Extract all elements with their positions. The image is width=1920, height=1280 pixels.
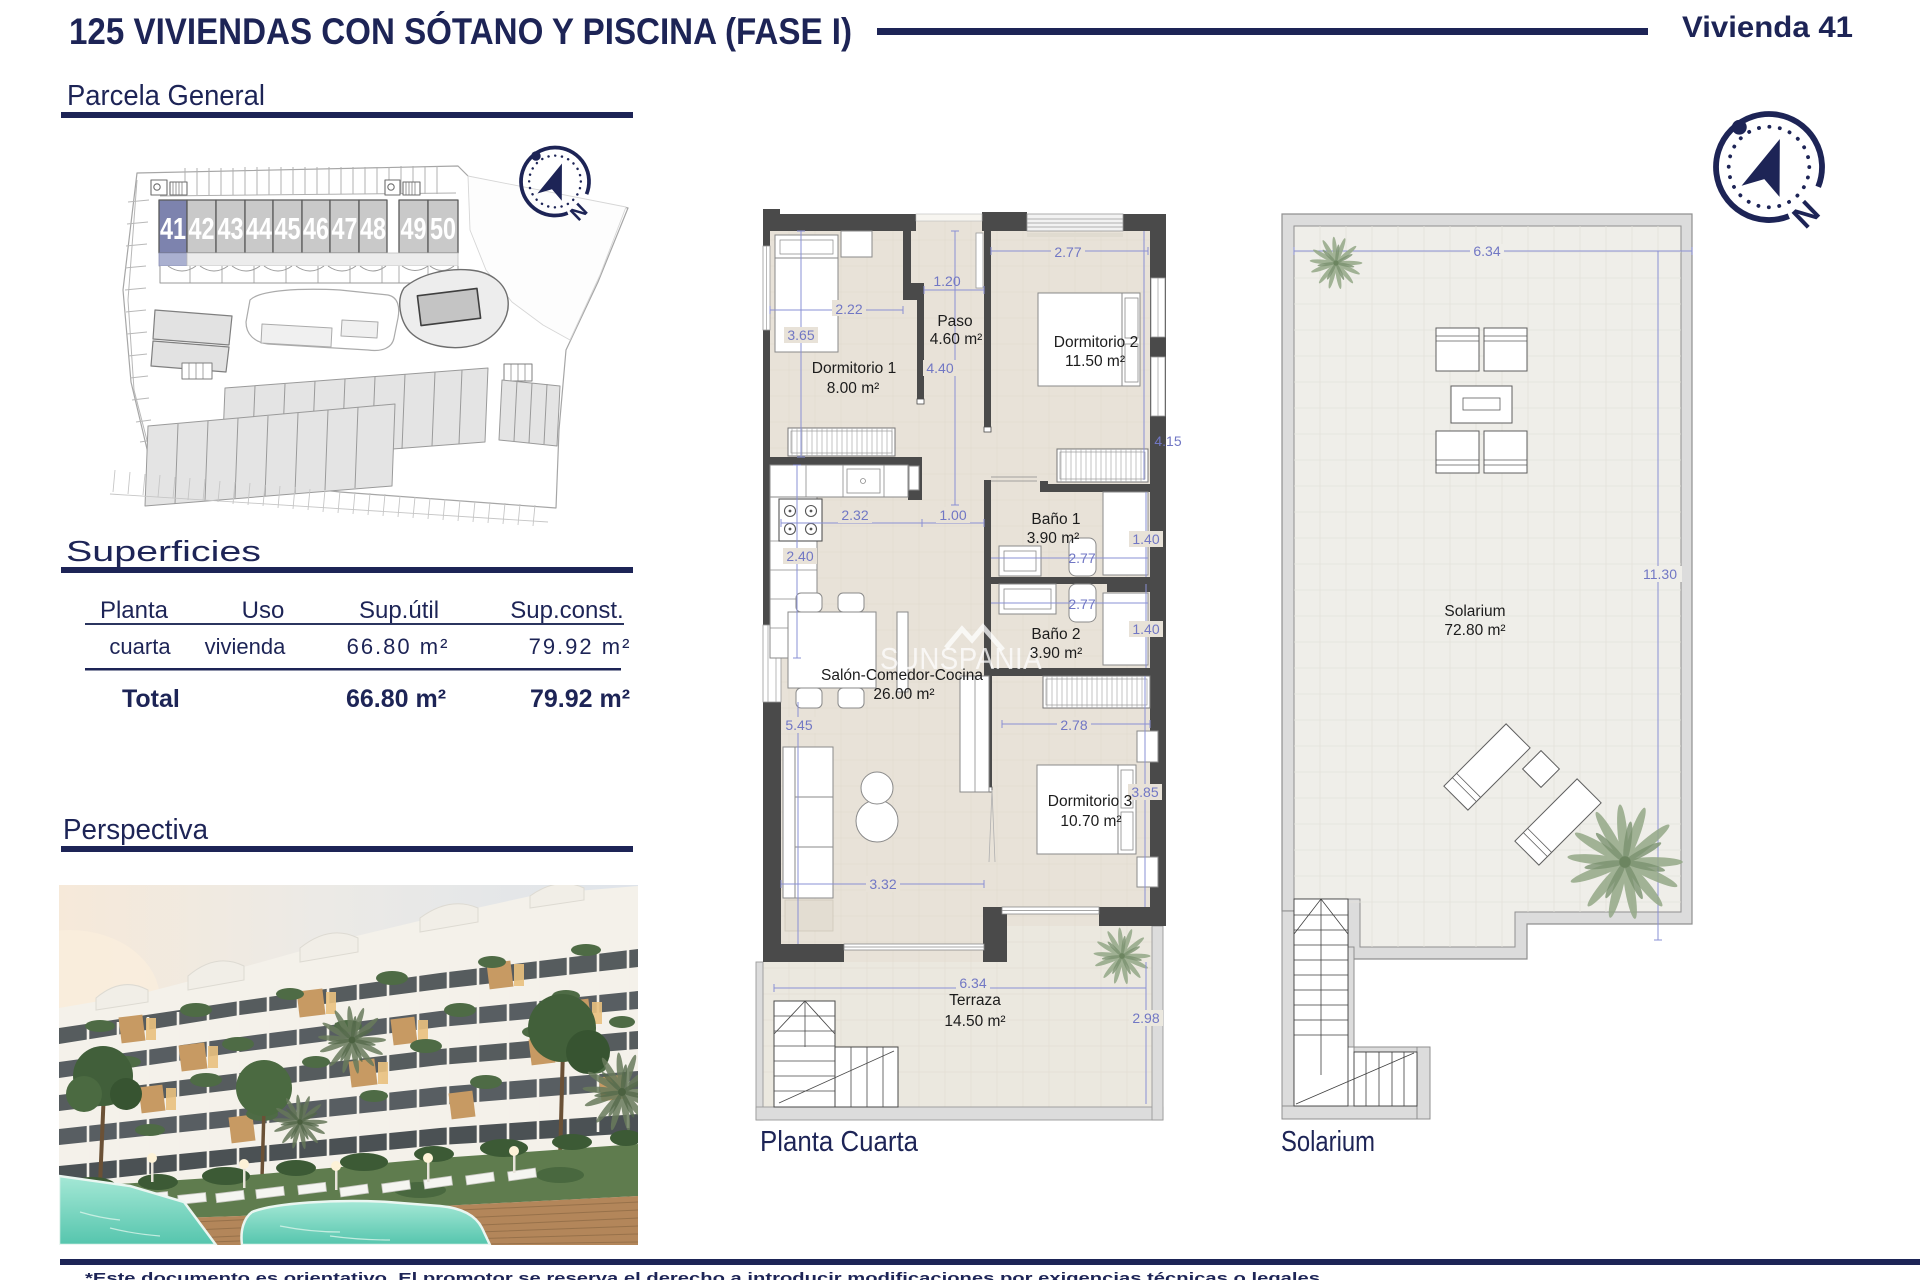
svg-text:3.85: 3.85 [1131, 784, 1158, 800]
svg-text:2.22: 2.22 [835, 301, 862, 317]
svg-text:10.70 m²: 10.70 m² [1060, 813, 1121, 830]
svg-text:*Este documento es orientativo: *Este documento es orientativo. El promo… [85, 1270, 1320, 1280]
svg-text:3.32: 3.32 [869, 876, 896, 892]
svg-text:Uso: Uso [242, 597, 285, 624]
svg-text:2.78: 2.78 [1060, 717, 1087, 733]
svg-text:50: 50 [430, 211, 456, 246]
svg-text:66.80 m²: 66.80 m² [347, 634, 450, 659]
svg-text:42: 42 [189, 211, 215, 246]
svg-text:Solarium: Solarium [1444, 603, 1505, 620]
svg-text:46: 46 [303, 211, 329, 246]
svg-text:1.00: 1.00 [939, 507, 966, 523]
svg-text:Sup.útil: Sup.útil [359, 597, 439, 624]
svg-text:3.90 m²: 3.90 m² [1027, 530, 1080, 547]
svg-text:1.40: 1.40 [1132, 531, 1159, 547]
svg-text:cuarta: cuarta [109, 634, 171, 659]
svg-text:Dormitorio 1: Dormitorio 1 [812, 360, 896, 377]
svg-text:11.50 m²: 11.50 m² [1065, 353, 1125, 370]
svg-text:79.92 m²: 79.92 m² [529, 634, 632, 659]
svg-text:Solarium: Solarium [1281, 1126, 1375, 1158]
svg-text:4.60 m²: 4.60 m² [930, 331, 983, 348]
svg-text:Dormitorio 3: Dormitorio 3 [1048, 793, 1132, 810]
svg-text:Perspectiva: Perspectiva [63, 814, 209, 846]
svg-text:125 VIVIENDAS CON SÓTANO Y PIS: 125 VIVIENDAS CON SÓTANO Y PISCINA (FASE… [69, 10, 852, 52]
svg-text:Total: Total [122, 685, 180, 713]
svg-text:2.77: 2.77 [1068, 596, 1095, 612]
svg-text:6.34: 6.34 [959, 975, 986, 991]
svg-text:2.98: 2.98 [1132, 1010, 1159, 1026]
svg-text:43: 43 [218, 211, 244, 246]
svg-text:Sup.const.: Sup.const. [510, 597, 623, 624]
svg-text:Superficies: Superficies [66, 536, 261, 568]
svg-text:72.80 m²: 72.80 m² [1444, 622, 1505, 639]
svg-text:45: 45 [275, 211, 301, 246]
svg-text:6.34: 6.34 [1473, 243, 1500, 259]
svg-text:Planta: Planta [100, 597, 169, 624]
svg-text:2.77: 2.77 [1054, 244, 1081, 260]
svg-text:14.50 m²: 14.50 m² [944, 1013, 1005, 1030]
svg-text:Vivienda 41: Vivienda 41 [1682, 11, 1853, 44]
svg-text:3.65: 3.65 [787, 327, 814, 343]
svg-text:2.40: 2.40 [786, 548, 813, 564]
svg-text:1.20: 1.20 [933, 273, 960, 289]
svg-text:vivienda: vivienda [205, 634, 286, 659]
svg-text:4.15: 4.15 [1154, 433, 1181, 449]
svg-text:47: 47 [332, 211, 358, 246]
svg-text:Planta Cuarta: Planta Cuarta [760, 1126, 919, 1158]
svg-text:Baño 2: Baño 2 [1031, 626, 1080, 643]
svg-text:Parcela General: Parcela General [67, 80, 265, 112]
svg-text:66.80 m²: 66.80 m² [346, 685, 446, 713]
svg-text:26.00 m²: 26.00 m² [873, 686, 934, 703]
svg-text:Terraza: Terraza [949, 992, 1001, 1009]
svg-text:5.45: 5.45 [785, 717, 812, 733]
svg-text:11.30: 11.30 [1643, 566, 1677, 582]
svg-text:41: 41 [160, 211, 186, 246]
svg-text:4.40: 4.40 [926, 360, 953, 376]
svg-text:44: 44 [246, 211, 273, 246]
svg-text:2.32: 2.32 [841, 507, 868, 523]
svg-text:2.77: 2.77 [1068, 550, 1095, 566]
svg-text:Salón-Comedor-Cocina: Salón-Comedor-Cocina [821, 667, 983, 684]
svg-text:Dormitorio 2: Dormitorio 2 [1054, 334, 1138, 351]
svg-text:49: 49 [401, 211, 427, 246]
svg-text:3.90 m²: 3.90 m² [1030, 645, 1083, 662]
svg-text:Paso: Paso [937, 313, 972, 330]
svg-text:1.40: 1.40 [1132, 621, 1159, 637]
svg-text:48: 48 [360, 211, 386, 246]
svg-text:Baño 1: Baño 1 [1031, 511, 1080, 528]
svg-text:8.00 m²: 8.00 m² [827, 380, 880, 397]
svg-text:79.92 m²: 79.92 m² [530, 685, 630, 713]
